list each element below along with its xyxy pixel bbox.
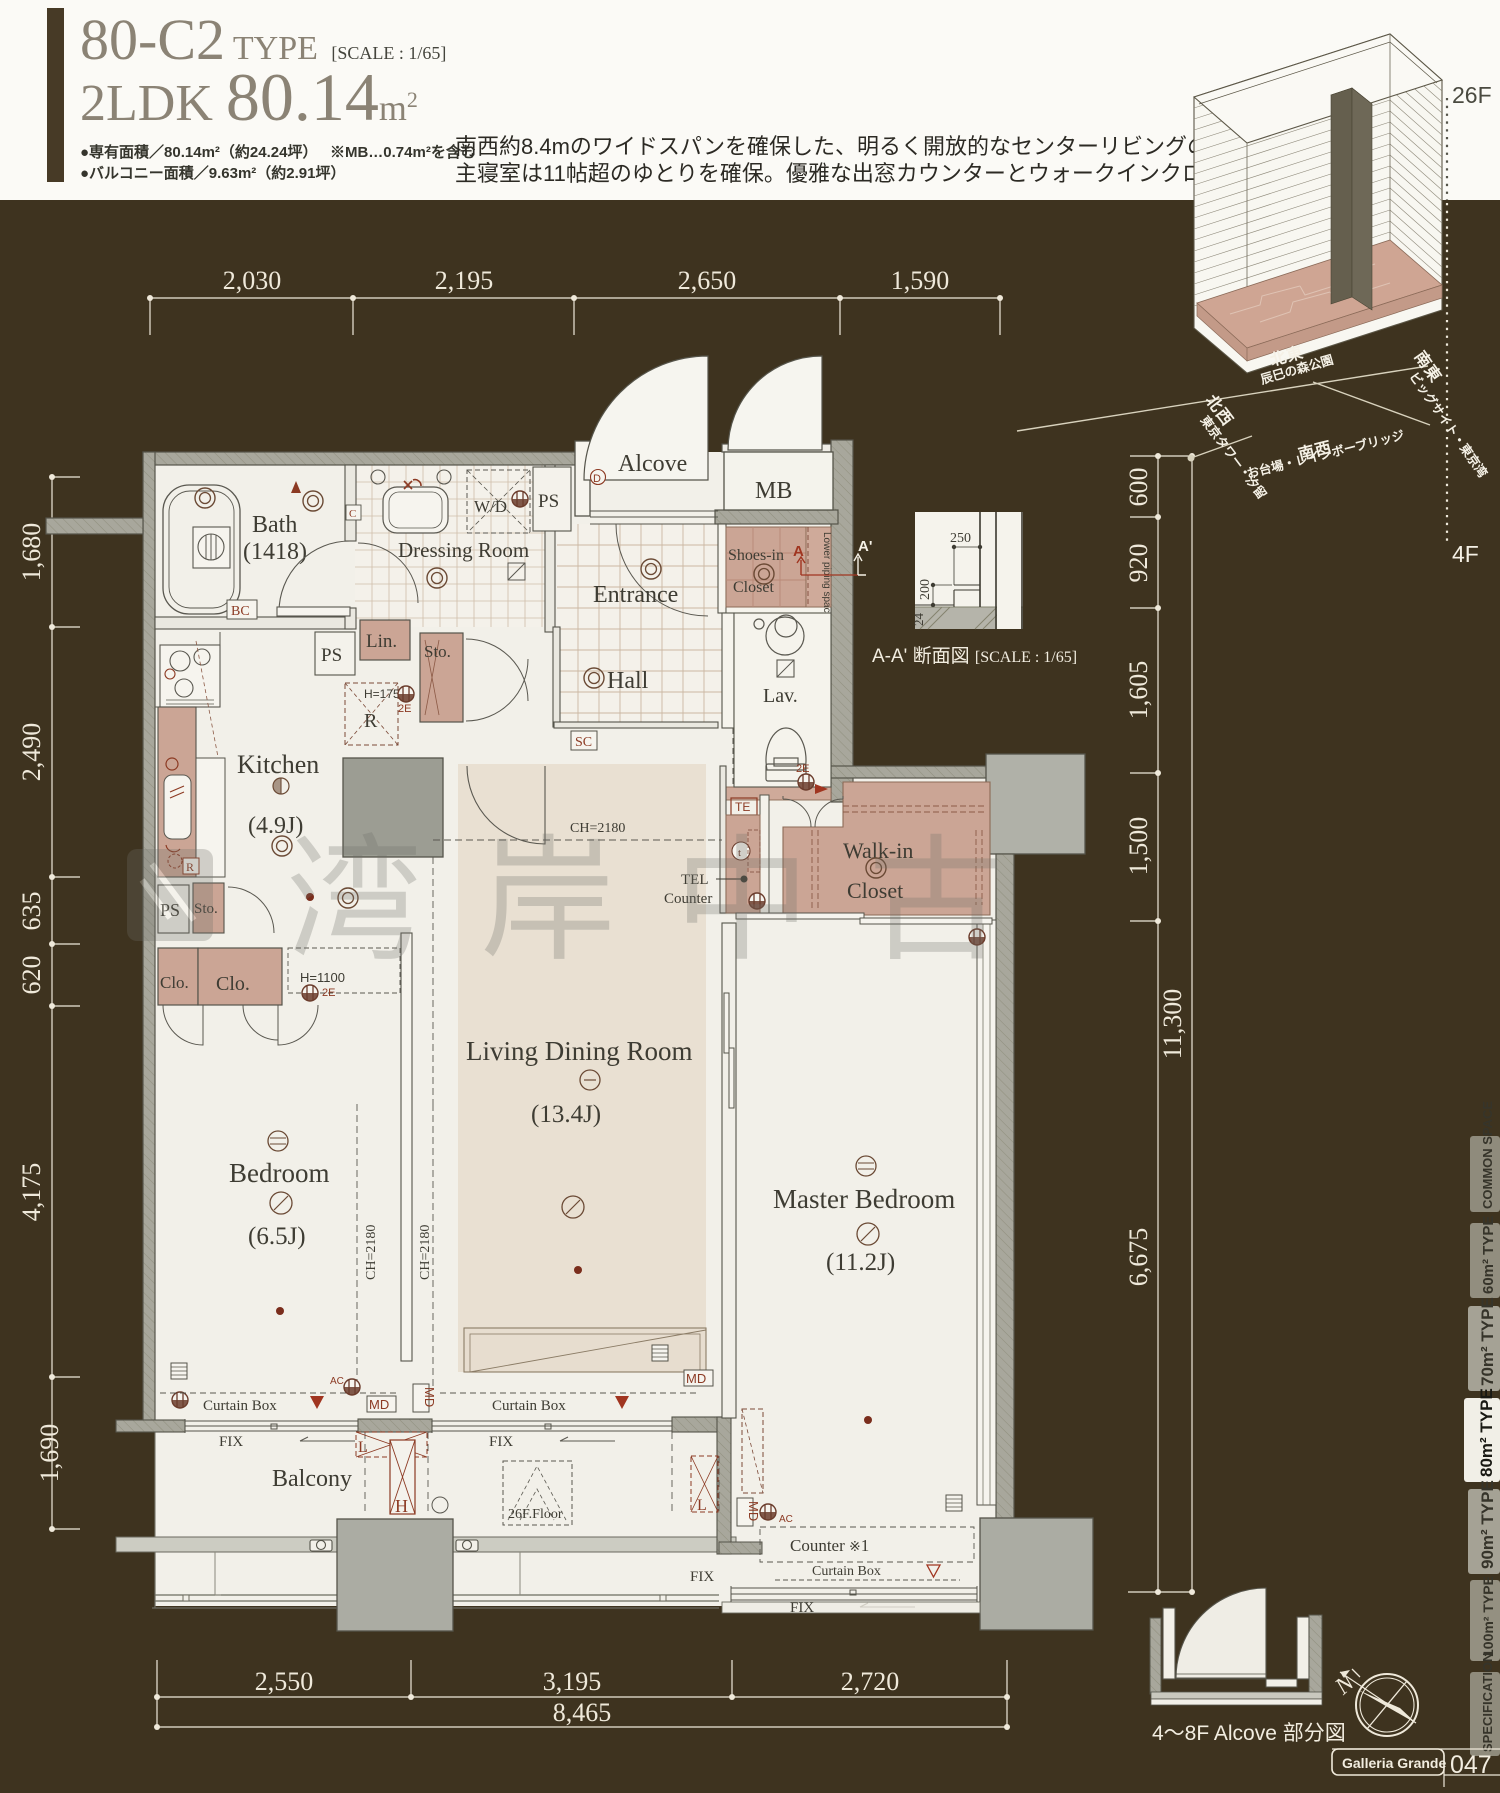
svg-text:1,690: 1,690	[35, 1424, 64, 1483]
svg-text:A: A	[793, 543, 804, 560]
svg-text:Sto.: Sto.	[424, 642, 451, 661]
svg-text:Bath: Bath	[252, 512, 297, 538]
svg-text:Dressing Room: Dressing Room	[398, 538, 529, 562]
svg-text:200: 200	[918, 579, 933, 600]
svg-text:2,650: 2,650	[678, 266, 737, 295]
svg-text:W/D: W/D	[474, 497, 507, 516]
svg-text:Shoes-in: Shoes-in	[728, 547, 784, 564]
svg-text:2,550: 2,550	[255, 1667, 314, 1696]
svg-text:24: 24	[911, 613, 926, 627]
svg-text:L: L	[697, 1497, 707, 1514]
svg-text:A': A'	[858, 538, 872, 555]
svg-text:Balcony: Balcony	[272, 1466, 352, 1492]
svg-text:Curtain Box: Curtain Box	[492, 1398, 566, 1414]
svg-text:1,680: 1,680	[17, 523, 46, 582]
svg-text:2E: 2E	[398, 703, 411, 715]
svg-text:H: H	[395, 1496, 408, 1516]
svg-text:2,030: 2,030	[223, 266, 282, 295]
svg-text:8,465: 8,465	[553, 1698, 612, 1727]
svg-text:PS: PS	[538, 491, 559, 512]
svg-text:MD: MD	[686, 1371, 706, 1386]
svg-text:60m² TYPE: 60m² TYPE	[1480, 1216, 1497, 1294]
svg-text:PS: PS	[321, 645, 342, 666]
svg-text:AC: AC	[779, 1514, 793, 1525]
svg-text:4F: 4F	[1452, 541, 1479, 567]
svg-text:R: R	[364, 710, 378, 732]
svg-text:250: 250	[950, 531, 971, 546]
svg-text:1,500: 1,500	[1124, 817, 1153, 876]
svg-text:湾岸中古マンション: 湾岸中古マンション	[286, 825, 1500, 977]
svg-text:Curtain Box: Curtain Box	[812, 1564, 881, 1579]
svg-text:3,195: 3,195	[543, 1667, 602, 1696]
svg-text:MD: MD	[422, 1387, 437, 1407]
svg-text:4,175: 4,175	[17, 1163, 46, 1222]
svg-text:Living Dining Room: Living Dining Room	[466, 1036, 693, 1066]
svg-text:1,605: 1,605	[1124, 661, 1153, 720]
svg-text:Counter ※1: Counter ※1	[790, 1536, 869, 1555]
svg-text:600: 600	[1124, 468, 1153, 507]
svg-text:2,195: 2,195	[435, 266, 494, 295]
svg-text:(11.2J): (11.2J)	[826, 1249, 895, 1276]
svg-text:635: 635	[17, 892, 46, 931]
svg-text:Master Bedroom: Master Bedroom	[773, 1184, 955, 1214]
svg-text:2E: 2E	[796, 763, 809, 775]
svg-text:Clo.: Clo.	[160, 973, 189, 992]
svg-text:Galleria Grande: Galleria Grande	[1342, 1755, 1446, 1771]
svg-text:6,675: 6,675	[1124, 1228, 1153, 1287]
svg-text:Kitchen: Kitchen	[237, 750, 319, 779]
svg-text:047: 047	[1450, 1751, 1492, 1779]
svg-text:(1418): (1418)	[243, 539, 307, 565]
svg-text:SPECIFICATION: SPECIFICATION	[1480, 1653, 1495, 1752]
svg-text:Entrance: Entrance	[593, 582, 678, 608]
svg-text:2,490: 2,490	[17, 723, 46, 782]
svg-text:Lav.: Lav.	[763, 685, 798, 707]
svg-text:(6.5J): (6.5J)	[248, 1223, 306, 1250]
svg-text:MD: MD	[369, 1397, 389, 1412]
svg-text:L: L	[358, 1439, 368, 1456]
svg-text:2,720: 2,720	[841, 1667, 900, 1696]
svg-text:90m² TYPE: 90m² TYPE	[1478, 1480, 1497, 1569]
svg-text:80m² TYPE: 80m² TYPE	[1477, 1388, 1496, 1477]
svg-text:東京タワー・汐留: 東京タワー・汐留	[1198, 413, 1270, 502]
svg-text:MB: MB	[755, 478, 792, 504]
svg-text:お台場・レインボーブリッジ: お台場・レインボーブリッジ	[1245, 427, 1406, 481]
svg-text:4～8F Alcove 部分図: 4～8F Alcove 部分図	[1152, 1722, 1346, 1745]
svg-text:ビッグサイト・東京湾: ビッグサイト・東京湾	[1407, 369, 1491, 480]
svg-text:A-A' 断面図 [SCALE : 1/65]: A-A' 断面図 [SCALE : 1/65]	[872, 645, 1077, 667]
svg-text:CH=2180: CH=2180	[364, 1225, 379, 1280]
svg-text:70m² TYPE: 70m² TYPE	[1478, 1297, 1497, 1386]
svg-text:(13.4J): (13.4J)	[531, 1101, 601, 1128]
svg-text:TE: TE	[735, 800, 750, 814]
svg-text:Closet: Closet	[733, 579, 774, 596]
svg-text:Lin.: Lin.	[366, 631, 397, 652]
svg-text:920: 920	[1124, 544, 1153, 583]
svg-text:620: 620	[17, 956, 46, 995]
svg-text:11,300: 11,300	[1158, 989, 1187, 1060]
svg-text:AC: AC	[330, 1376, 344, 1387]
svg-text:C: C	[349, 508, 356, 520]
svg-text:BC: BC	[231, 604, 250, 619]
svg-text:Bedroom: Bedroom	[229, 1158, 330, 1188]
svg-text:MD: MD	[746, 1501, 761, 1521]
svg-text:COMMON SPACE: COMMON SPACE	[1480, 1101, 1495, 1209]
svg-text:Curtain Box: Curtain Box	[203, 1398, 277, 1414]
svg-text:D: D	[593, 473, 601, 485]
svg-text:Alcove: Alcove	[618, 451, 687, 477]
svg-text:1,590: 1,590	[891, 266, 950, 295]
svg-text:FIX: FIX	[790, 1600, 814, 1616]
svg-text:CH=2180: CH=2180	[418, 1225, 433, 1280]
svg-text:100m² TYPE: 100m² TYPE	[1480, 1576, 1496, 1657]
svg-text:FIX: FIX	[489, 1434, 513, 1450]
svg-text:26F: 26F	[1452, 82, 1492, 108]
svg-text:2E: 2E	[322, 987, 335, 999]
svg-text:26F.Floor: 26F.Floor	[508, 1507, 563, 1522]
svg-text:FIX: FIX	[690, 1569, 714, 1585]
svg-text:Clo.: Clo.	[216, 973, 250, 995]
svg-text:FIX: FIX	[219, 1434, 243, 1450]
svg-text:Hall: Hall	[607, 668, 649, 694]
svg-text:SC: SC	[575, 735, 592, 750]
